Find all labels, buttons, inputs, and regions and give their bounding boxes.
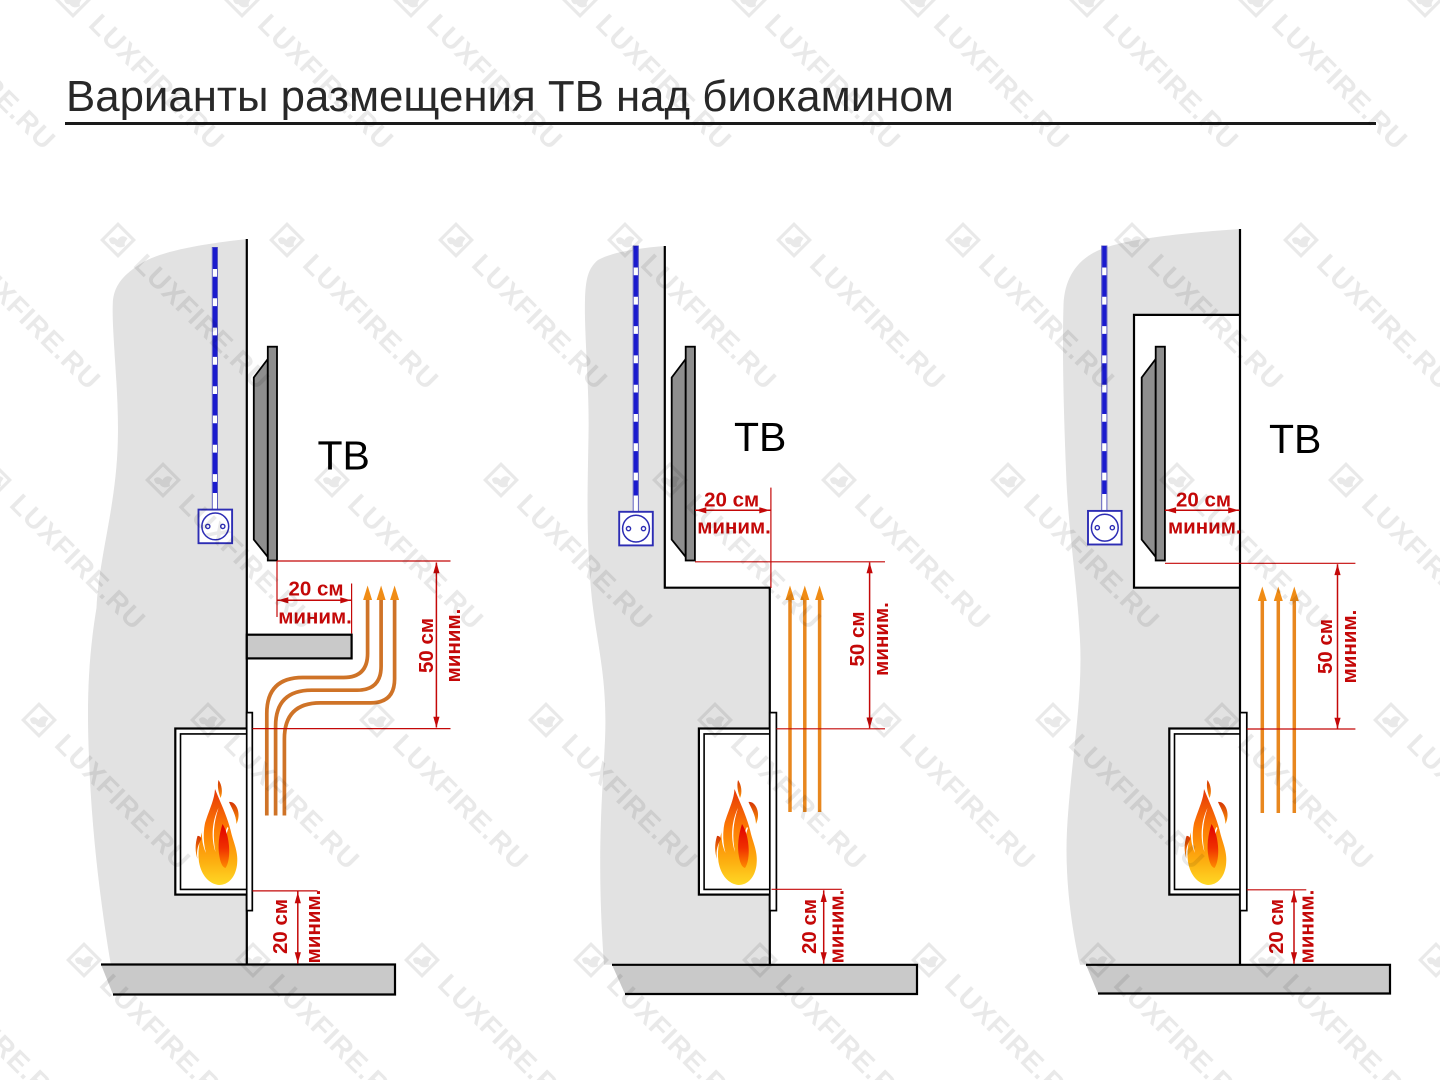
svg-text:LUXFIRE.RU: LUXFIRE.RU [1435, 8, 1440, 156]
svg-text:LUXFIRE.RU: LUXFIRE.RU [1232, 728, 1380, 876]
svg-text:LUXFIRE.RU: LUXFIRE.RU [804, 248, 952, 396]
svg-text:LUXFIRE.RU: LUXFIRE.RU [894, 728, 1042, 876]
svg-text:LUXFIRE.RU: LUXFIRE.RU [387, 728, 535, 876]
svg-text:LUXFIRE.RU: LUXFIRE.RU [1356, 488, 1440, 636]
svg-text:50 см: 50 см [846, 611, 869, 666]
svg-text:ТВ: ТВ [1269, 416, 1321, 462]
svg-text:LUXFIRE.RU: LUXFIRE.RU [1311, 248, 1440, 396]
svg-text:LUXFIRE.RU: LUXFIRE.RU [0, 968, 73, 1080]
svg-text:LUXFIRE.RU: LUXFIRE.RU [1401, 728, 1440, 876]
svg-text:миним.: миним. [826, 890, 849, 964]
svg-text:LUXFIRE.RU: LUXFIRE.RU [0, 8, 62, 156]
svg-text:миним.: миним. [1338, 610, 1361, 684]
svg-text:ТВ: ТВ [734, 414, 786, 460]
svg-text:LUXFIRE.RU: LUXFIRE.RU [1097, 8, 1245, 156]
svg-text:LUXFIRE.RU: LUXFIRE.RU [297, 248, 445, 396]
svg-text:20 см: 20 см [269, 899, 292, 954]
svg-text:миним.: миним. [870, 602, 893, 676]
svg-text:20 см: 20 см [798, 899, 821, 954]
svg-text:миним.: миним. [1295, 890, 1318, 964]
svg-text:50 см: 50 см [415, 618, 438, 673]
svg-text:LUXFIRE.RU: LUXFIRE.RU [342, 488, 490, 636]
svg-text:LUXFIRE.RU: LUXFIRE.RU [432, 968, 580, 1080]
svg-text:миним.: миним. [302, 890, 325, 964]
svg-text:LUXFIRE.RU: LUXFIRE.RU [939, 968, 1087, 1080]
svg-text:LUXFIRE.RU: LUXFIRE.RU [0, 248, 107, 396]
svg-text:LUXFIRE.RU: LUXFIRE.RU [1266, 8, 1414, 156]
